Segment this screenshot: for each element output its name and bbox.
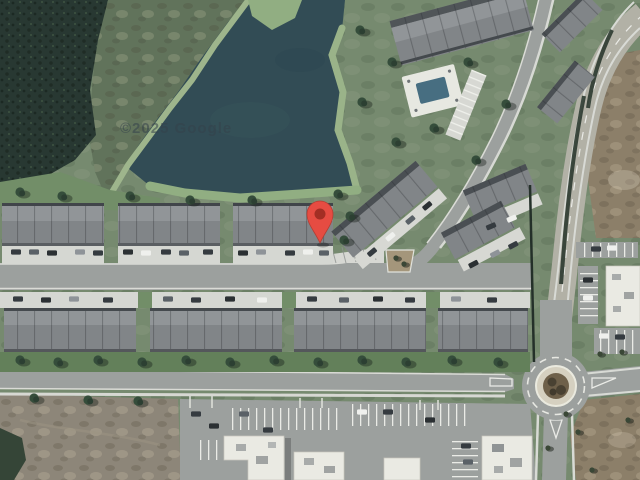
map-viewport[interactable]: ©2025 Google xyxy=(0,0,640,480)
haze-overlay xyxy=(0,0,640,480)
